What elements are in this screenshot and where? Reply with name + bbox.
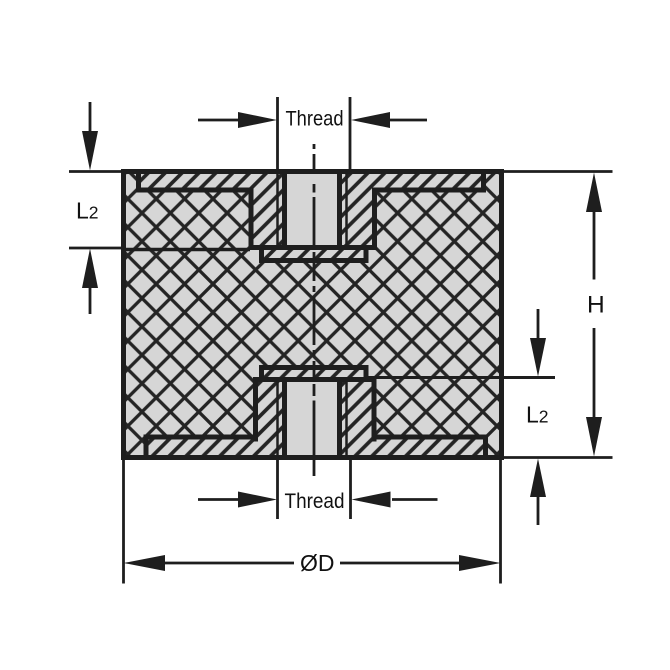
- svg-text:H: H: [587, 292, 605, 319]
- svg-text:Thread: Thread: [286, 107, 344, 131]
- svg-text:ØD: ØD: [300, 550, 335, 576]
- svg-text:Thread: Thread: [285, 489, 345, 513]
